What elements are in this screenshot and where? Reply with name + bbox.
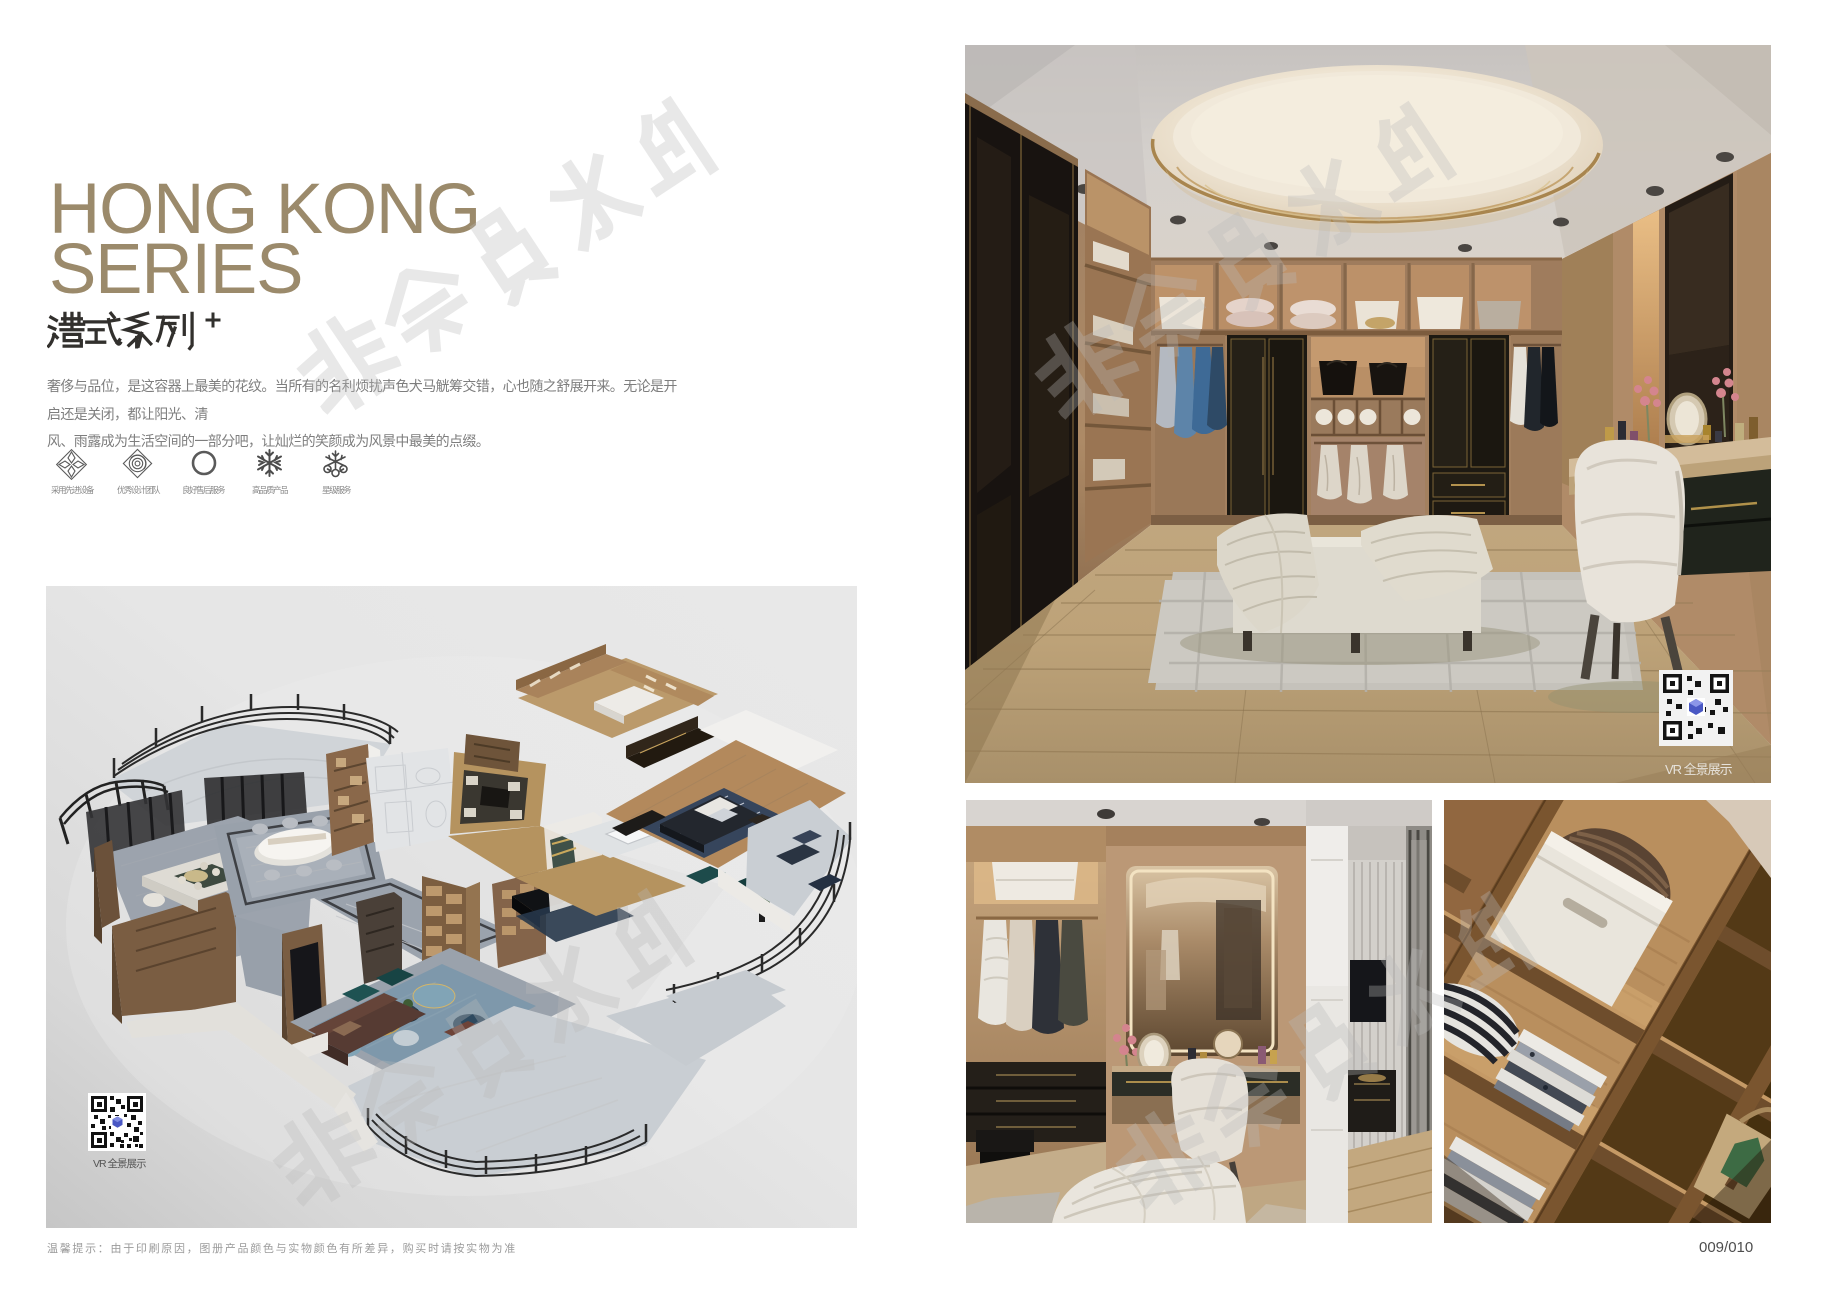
- svg-text:VR 全景展示: VR 全景展示: [1665, 762, 1733, 777]
- svg-text:VR 全景展示: VR 全景展示: [93, 1157, 146, 1170]
